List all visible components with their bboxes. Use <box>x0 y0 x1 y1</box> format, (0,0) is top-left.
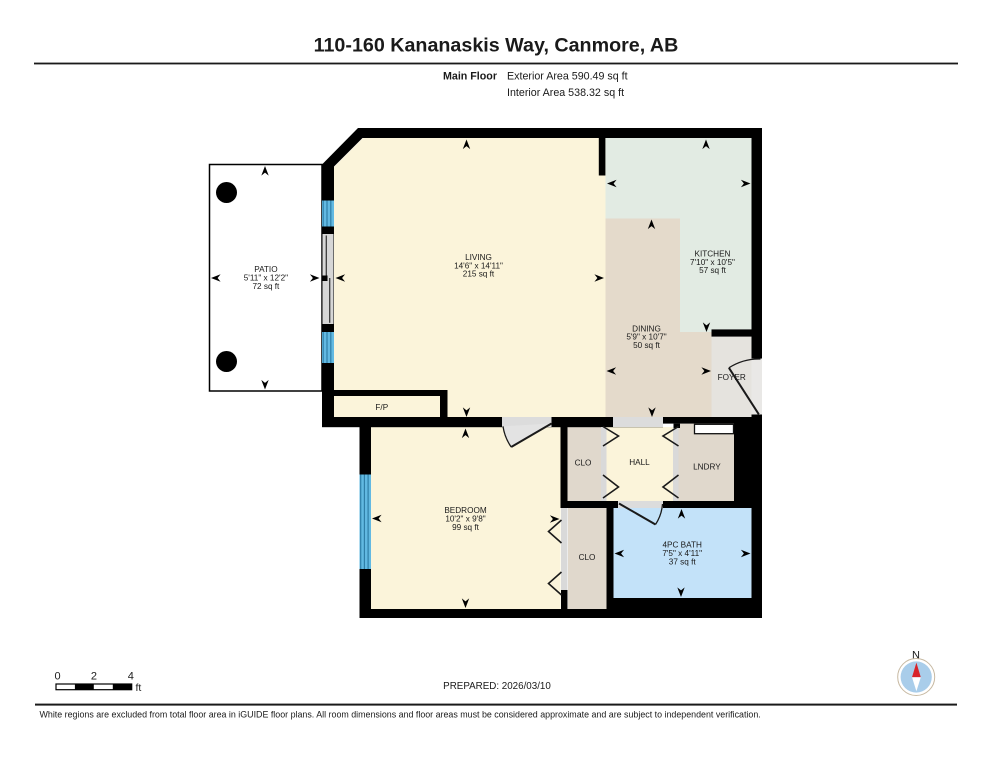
svg-text:Exterior Area 590.49 sq ft: Exterior Area 590.49 sq ft <box>507 71 628 83</box>
svg-text:PREPARED: 2026/03/10: PREPARED: 2026/03/10 <box>443 681 551 692</box>
svg-text:57 sq ft: 57 sq ft <box>699 266 727 275</box>
svg-text:215 sq ft: 215 sq ft <box>463 270 495 279</box>
svg-text:Interior Area 538.32 sq ft: Interior Area 538.32 sq ft <box>507 87 624 99</box>
svg-text:F/P: F/P <box>375 403 388 412</box>
svg-text:Main Floor: Main Floor <box>443 71 497 83</box>
svg-text:0: 0 <box>54 671 60 683</box>
svg-text:99 sq ft: 99 sq ft <box>452 523 480 532</box>
svg-text:50 sq ft: 50 sq ft <box>633 341 661 350</box>
svg-text:BEDROOM: BEDROOM <box>444 506 486 515</box>
svg-text:37 sq ft: 37 sq ft <box>669 558 697 567</box>
svg-text:HALL: HALL <box>629 458 650 467</box>
svg-text:CLO: CLO <box>579 553 596 562</box>
svg-text:ft: ft <box>136 682 142 694</box>
svg-text:LNDRY: LNDRY <box>693 463 721 472</box>
svg-text:110-160 Kananaskis Way, Canmor: 110-160 Kananaskis Way, Canmore, AB <box>314 35 679 57</box>
svg-text:4: 4 <box>128 671 134 683</box>
svg-text:CLO: CLO <box>575 459 592 468</box>
svg-text:2: 2 <box>91 671 97 683</box>
svg-text:White regions are excluded fro: White regions are excluded from total fl… <box>40 709 761 719</box>
svg-text:FOYER: FOYER <box>718 373 746 382</box>
svg-text:72 sq ft: 72 sq ft <box>252 282 280 291</box>
